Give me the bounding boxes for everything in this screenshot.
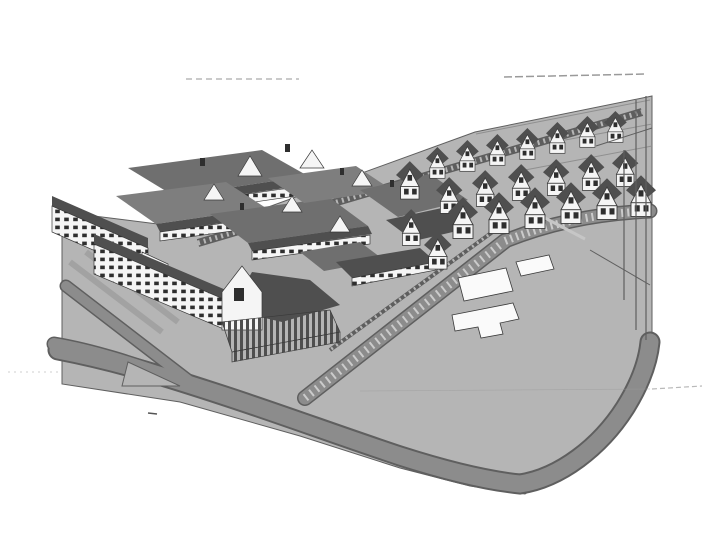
chimney	[240, 203, 244, 210]
gable-end	[300, 150, 324, 168]
chimney	[340, 168, 344, 175]
gable-window	[234, 288, 244, 301]
chimney	[200, 158, 205, 166]
scan-mark	[652, 386, 702, 389]
chimney	[390, 180, 394, 187]
architectural-rendering	[0, 0, 710, 535]
chimney	[285, 144, 290, 152]
scan-speck	[148, 413, 157, 414]
scan-mark	[504, 74, 646, 77]
